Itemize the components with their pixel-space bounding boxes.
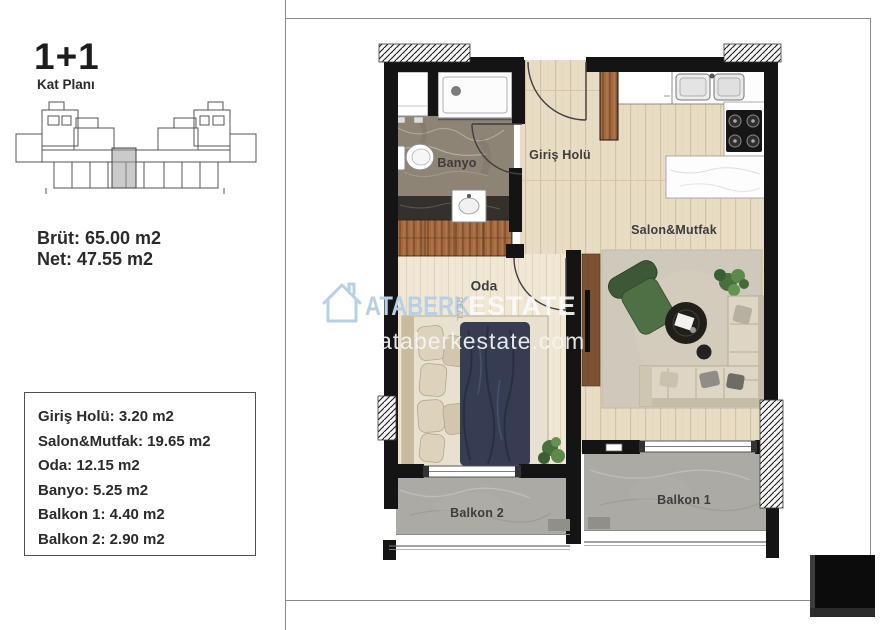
area-row: Balkon 1: 4.40 m2 [38, 503, 255, 528]
area-row: Oda: 12.15 m2 [38, 454, 255, 479]
watermark-website: ataberkestate.com [379, 328, 585, 355]
watermark-brand-last: ESTATE [468, 291, 577, 322]
toilet [396, 144, 434, 170]
room-label-balkon-1: Balkon 1 [657, 493, 711, 507]
stove [726, 110, 762, 152]
room-label-balkon-2: Balkon 2 [450, 506, 504, 520]
area-table: Giriş Holü: 3.20 m2 Salon&Mutfak: 19.65 … [24, 392, 256, 556]
room-label-giris-holu: Giriş Holü [529, 148, 591, 162]
fridge [618, 70, 672, 104]
side-table [697, 345, 712, 360]
bathroom-sink [452, 190, 486, 222]
tv [585, 290, 590, 352]
floor-plan-sheet: 1+1 Kat Planı Brüt: 65.00 m2 Net: 47.55 … [0, 0, 891, 630]
area-row: Giriş Holü: 3.20 m2 [38, 405, 255, 430]
bedroom-closet [396, 220, 512, 256]
kitchen-sink [672, 70, 766, 104]
area-row: Balkon 2: 2.90 m2 [38, 528, 255, 553]
entry-wardrobe [600, 70, 618, 140]
net-area: Net: 47.55 m2 [37, 249, 153, 270]
corner-block [810, 555, 875, 617]
counter-lower [666, 156, 766, 198]
room-label-banyo: Banyo [437, 156, 476, 170]
plan-type-label: Kat Planı [37, 77, 95, 92]
tv-unit [582, 254, 600, 386]
building-key-plan [16, 102, 256, 194]
area-row: Salon&Mutfak: 19.65 m2 [38, 430, 255, 455]
gross-area: Brüt: 65.00 m2 [37, 228, 161, 249]
area-row: Banyo: 5.25 m2 [38, 479, 255, 504]
unit-type: 1+1 [34, 36, 100, 78]
house-icon [320, 281, 368, 323]
highlighted-unit [112, 148, 136, 188]
shower [438, 72, 512, 120]
watermark-brand-middle: REAL [455, 297, 464, 322]
coffee-table [665, 302, 707, 344]
room-label-salon-mutfak: Salon&Mutfak [631, 223, 717, 237]
